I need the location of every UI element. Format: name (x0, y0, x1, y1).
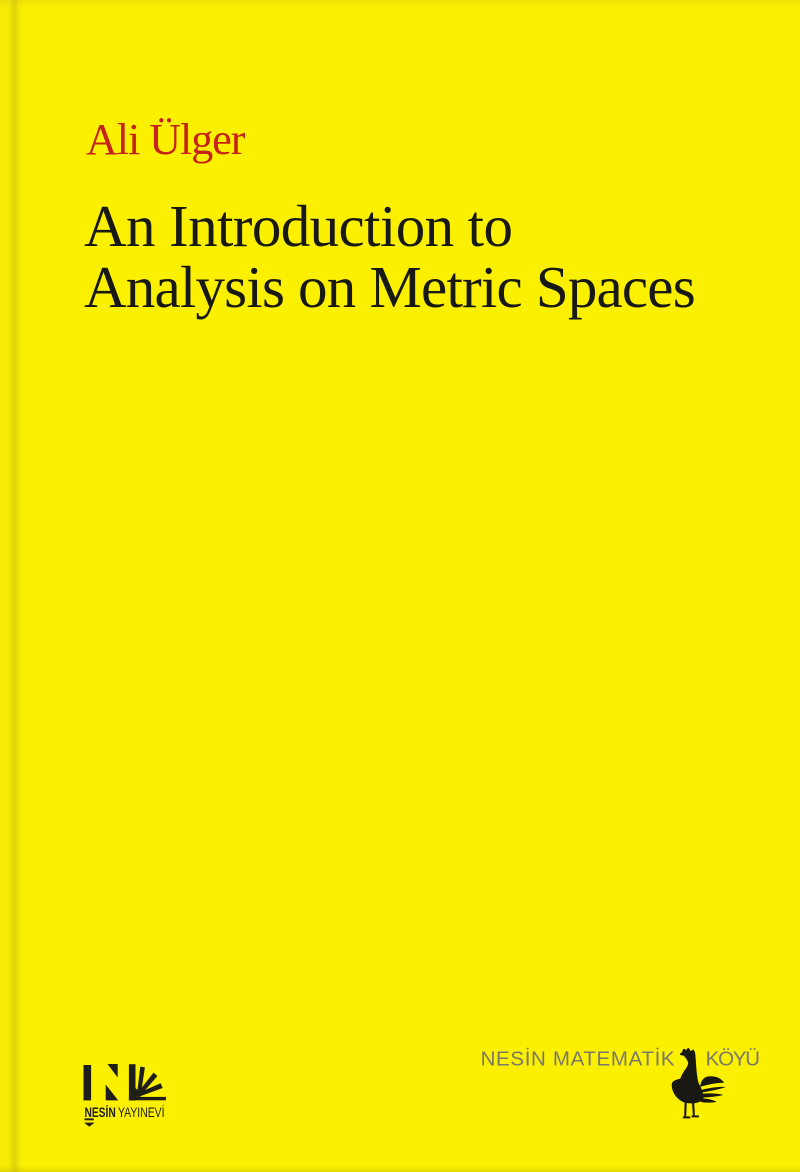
svg-text:KÖYÜ: KÖYÜ (706, 1047, 761, 1070)
svg-text:NESİN MATEMATİK: NESİN MATEMATİK (481, 1047, 675, 1070)
svg-text:YAYINEVİ: YAYINEVİ (118, 1105, 165, 1120)
